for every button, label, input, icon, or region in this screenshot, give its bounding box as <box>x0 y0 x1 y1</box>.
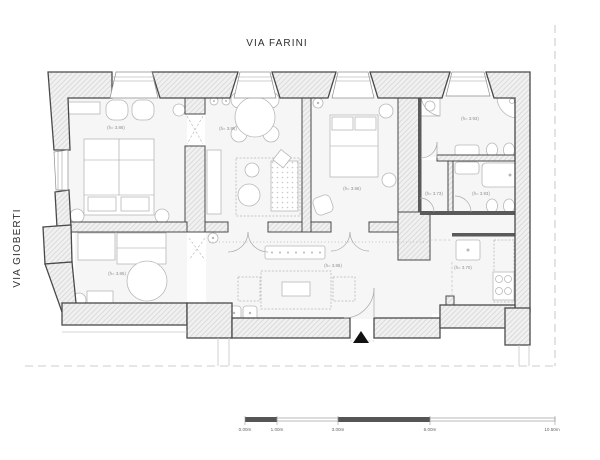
label-dining-room: (h= 3.86) <box>219 126 237 131</box>
scale-tick-2: 3.00m <box>332 427 345 432</box>
scale-tick-1: 1.00m <box>271 427 284 432</box>
floor-plan-sheet: VIA FARINI VIA GIOBERTI (h= 3.86) (h= 3.… <box>0 0 600 460</box>
label-anteroom: (h= 3.73) <box>425 191 443 196</box>
label-bathroom-se: (h= 3.93) <box>472 191 490 196</box>
entrance-marker-icon <box>353 331 369 343</box>
street-label-via-farini: VIA FARINI <box>246 38 308 49</box>
scale-tick-0: 0.00m <box>239 427 252 432</box>
label-bedroom-nw: (h= 3.86) <box>107 125 125 130</box>
scale-tick-4: 10.50m <box>544 427 559 432</box>
label-kitchen: (h= 3.70) <box>454 265 472 270</box>
label-bathroom-ne: (h= 3.93) <box>461 116 479 121</box>
floor-plan-drawing: VIA FARINI VIA GIOBERTI (h= 3.86) (h= 3.… <box>0 0 600 460</box>
label-living-hall: (h= 3.86) <box>324 263 342 268</box>
scale-tick-3: 6.00m <box>424 427 437 432</box>
label-bedroom-sw: (h= 3.86) <box>108 271 126 276</box>
room-floor-anteroom <box>420 160 450 212</box>
label-bedroom-n: (h= 3.86) <box>343 186 361 191</box>
street-label-via-gioberti: VIA GIOBERTI <box>12 208 23 287</box>
scale-bar: 0.00m 1.00m 3.00m 6.00m 10.50m <box>239 416 560 432</box>
